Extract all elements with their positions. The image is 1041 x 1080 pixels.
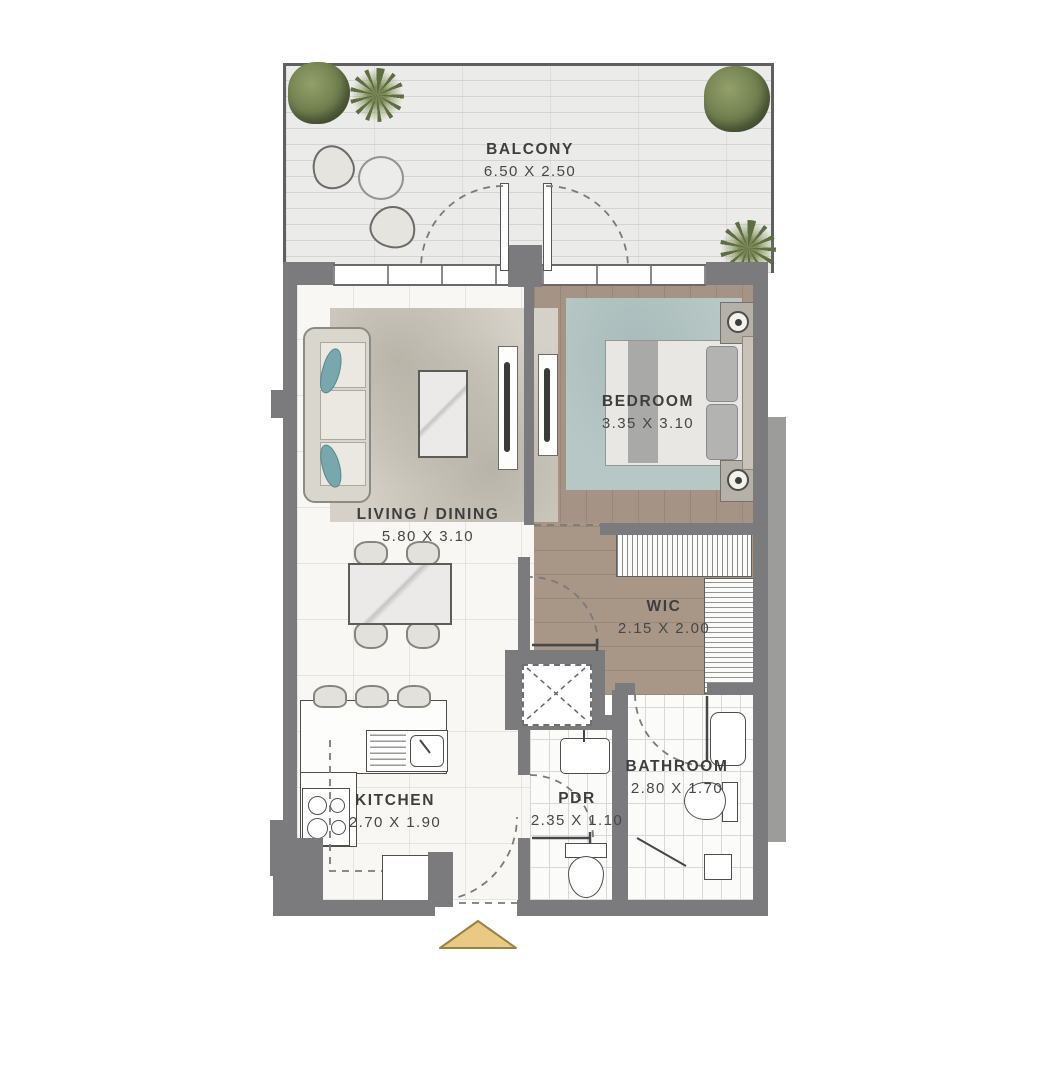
room-label-living-dining: LIVING / DINING 5.80 X 3.10 bbox=[357, 506, 500, 545]
wall bbox=[615, 683, 635, 695]
appliance bbox=[382, 855, 432, 904]
wall-pilaster bbox=[271, 390, 283, 418]
plant-palm-icon bbox=[350, 68, 404, 122]
floor-plan: BALCONY 6.50 X 2.50 BEDROOM 3.35 X 3.10 … bbox=[0, 0, 1041, 1080]
sliding-window bbox=[333, 264, 508, 286]
bar-stool bbox=[355, 685, 389, 708]
wall bbox=[283, 268, 297, 915]
balcony-door-leaf bbox=[543, 183, 552, 271]
wall bbox=[524, 285, 534, 525]
room-dims: 2.15 X 2.00 bbox=[618, 620, 710, 637]
burner bbox=[331, 820, 346, 835]
sofa-cushion bbox=[320, 390, 366, 440]
room-label-kitchen: KITCHEN 2.70 X 1.90 bbox=[349, 792, 441, 831]
dining-chair bbox=[406, 621, 440, 649]
shower-control bbox=[704, 854, 732, 880]
closet-rack bbox=[616, 533, 752, 577]
balcony-door-leaf bbox=[500, 183, 509, 271]
wall bbox=[518, 557, 530, 655]
room-dims: 2.70 X 1.90 bbox=[349, 814, 441, 831]
wall bbox=[518, 838, 530, 902]
room-label-wic: WIC 2.15 X 2.00 bbox=[618, 598, 710, 637]
room-dims: 2.35 X 1.10 bbox=[531, 812, 623, 829]
room-name: BATHROOM bbox=[626, 758, 729, 776]
room-label-bedroom: BEDROOM 3.35 X 3.10 bbox=[602, 393, 694, 432]
bed-pillow bbox=[706, 346, 738, 402]
coffee-table bbox=[418, 370, 468, 458]
burner bbox=[330, 798, 345, 813]
wall bbox=[600, 523, 753, 535]
dining-table bbox=[348, 563, 452, 625]
room-name: BEDROOM bbox=[602, 393, 694, 411]
sliding-window bbox=[542, 264, 706, 286]
room-name: PDR bbox=[531, 790, 623, 808]
room-name: WIC bbox=[618, 598, 710, 616]
tv-icon bbox=[544, 368, 550, 442]
bar-stool bbox=[313, 685, 347, 708]
room-dims: 5.80 X 3.10 bbox=[357, 528, 500, 545]
room-name: KITCHEN bbox=[349, 792, 441, 810]
pdr-sink-icon bbox=[560, 738, 610, 774]
lamp-icon bbox=[727, 469, 749, 491]
room-dims: 3.35 X 3.10 bbox=[602, 415, 694, 432]
burner bbox=[308, 796, 327, 815]
wall bbox=[518, 730, 530, 775]
room-name: LIVING / DINING bbox=[357, 506, 500, 524]
wall bbox=[517, 900, 768, 916]
dining-chair bbox=[354, 621, 388, 649]
column bbox=[508, 245, 542, 287]
room-name: BALCONY bbox=[484, 141, 576, 159]
room-label-balcony: BALCONY 6.50 X 2.50 bbox=[484, 141, 576, 180]
sink-basin bbox=[410, 735, 444, 767]
balcony-table bbox=[358, 156, 404, 200]
wall bbox=[753, 268, 768, 915]
tv-icon bbox=[504, 362, 510, 452]
closet-rack bbox=[704, 578, 755, 694]
wall bbox=[707, 683, 753, 695]
sink-drainer bbox=[370, 734, 406, 766]
burner bbox=[307, 818, 328, 839]
bed-pillow bbox=[706, 404, 738, 460]
room-dims: 6.50 X 2.50 bbox=[484, 163, 576, 180]
wall bbox=[428, 852, 453, 907]
lamp-icon bbox=[727, 311, 749, 333]
room-dims: 2.80 X 1.70 bbox=[626, 780, 729, 797]
room-label-bathroom: BATHROOM 2.80 X 1.70 bbox=[626, 758, 729, 797]
wall bbox=[273, 900, 435, 916]
entry-arrow bbox=[440, 921, 516, 948]
wall-step bbox=[768, 417, 786, 842]
bar-stool bbox=[397, 685, 431, 708]
room-label-pdr: PDR 2.35 X 1.10 bbox=[531, 790, 623, 829]
shaft bbox=[522, 664, 592, 726]
